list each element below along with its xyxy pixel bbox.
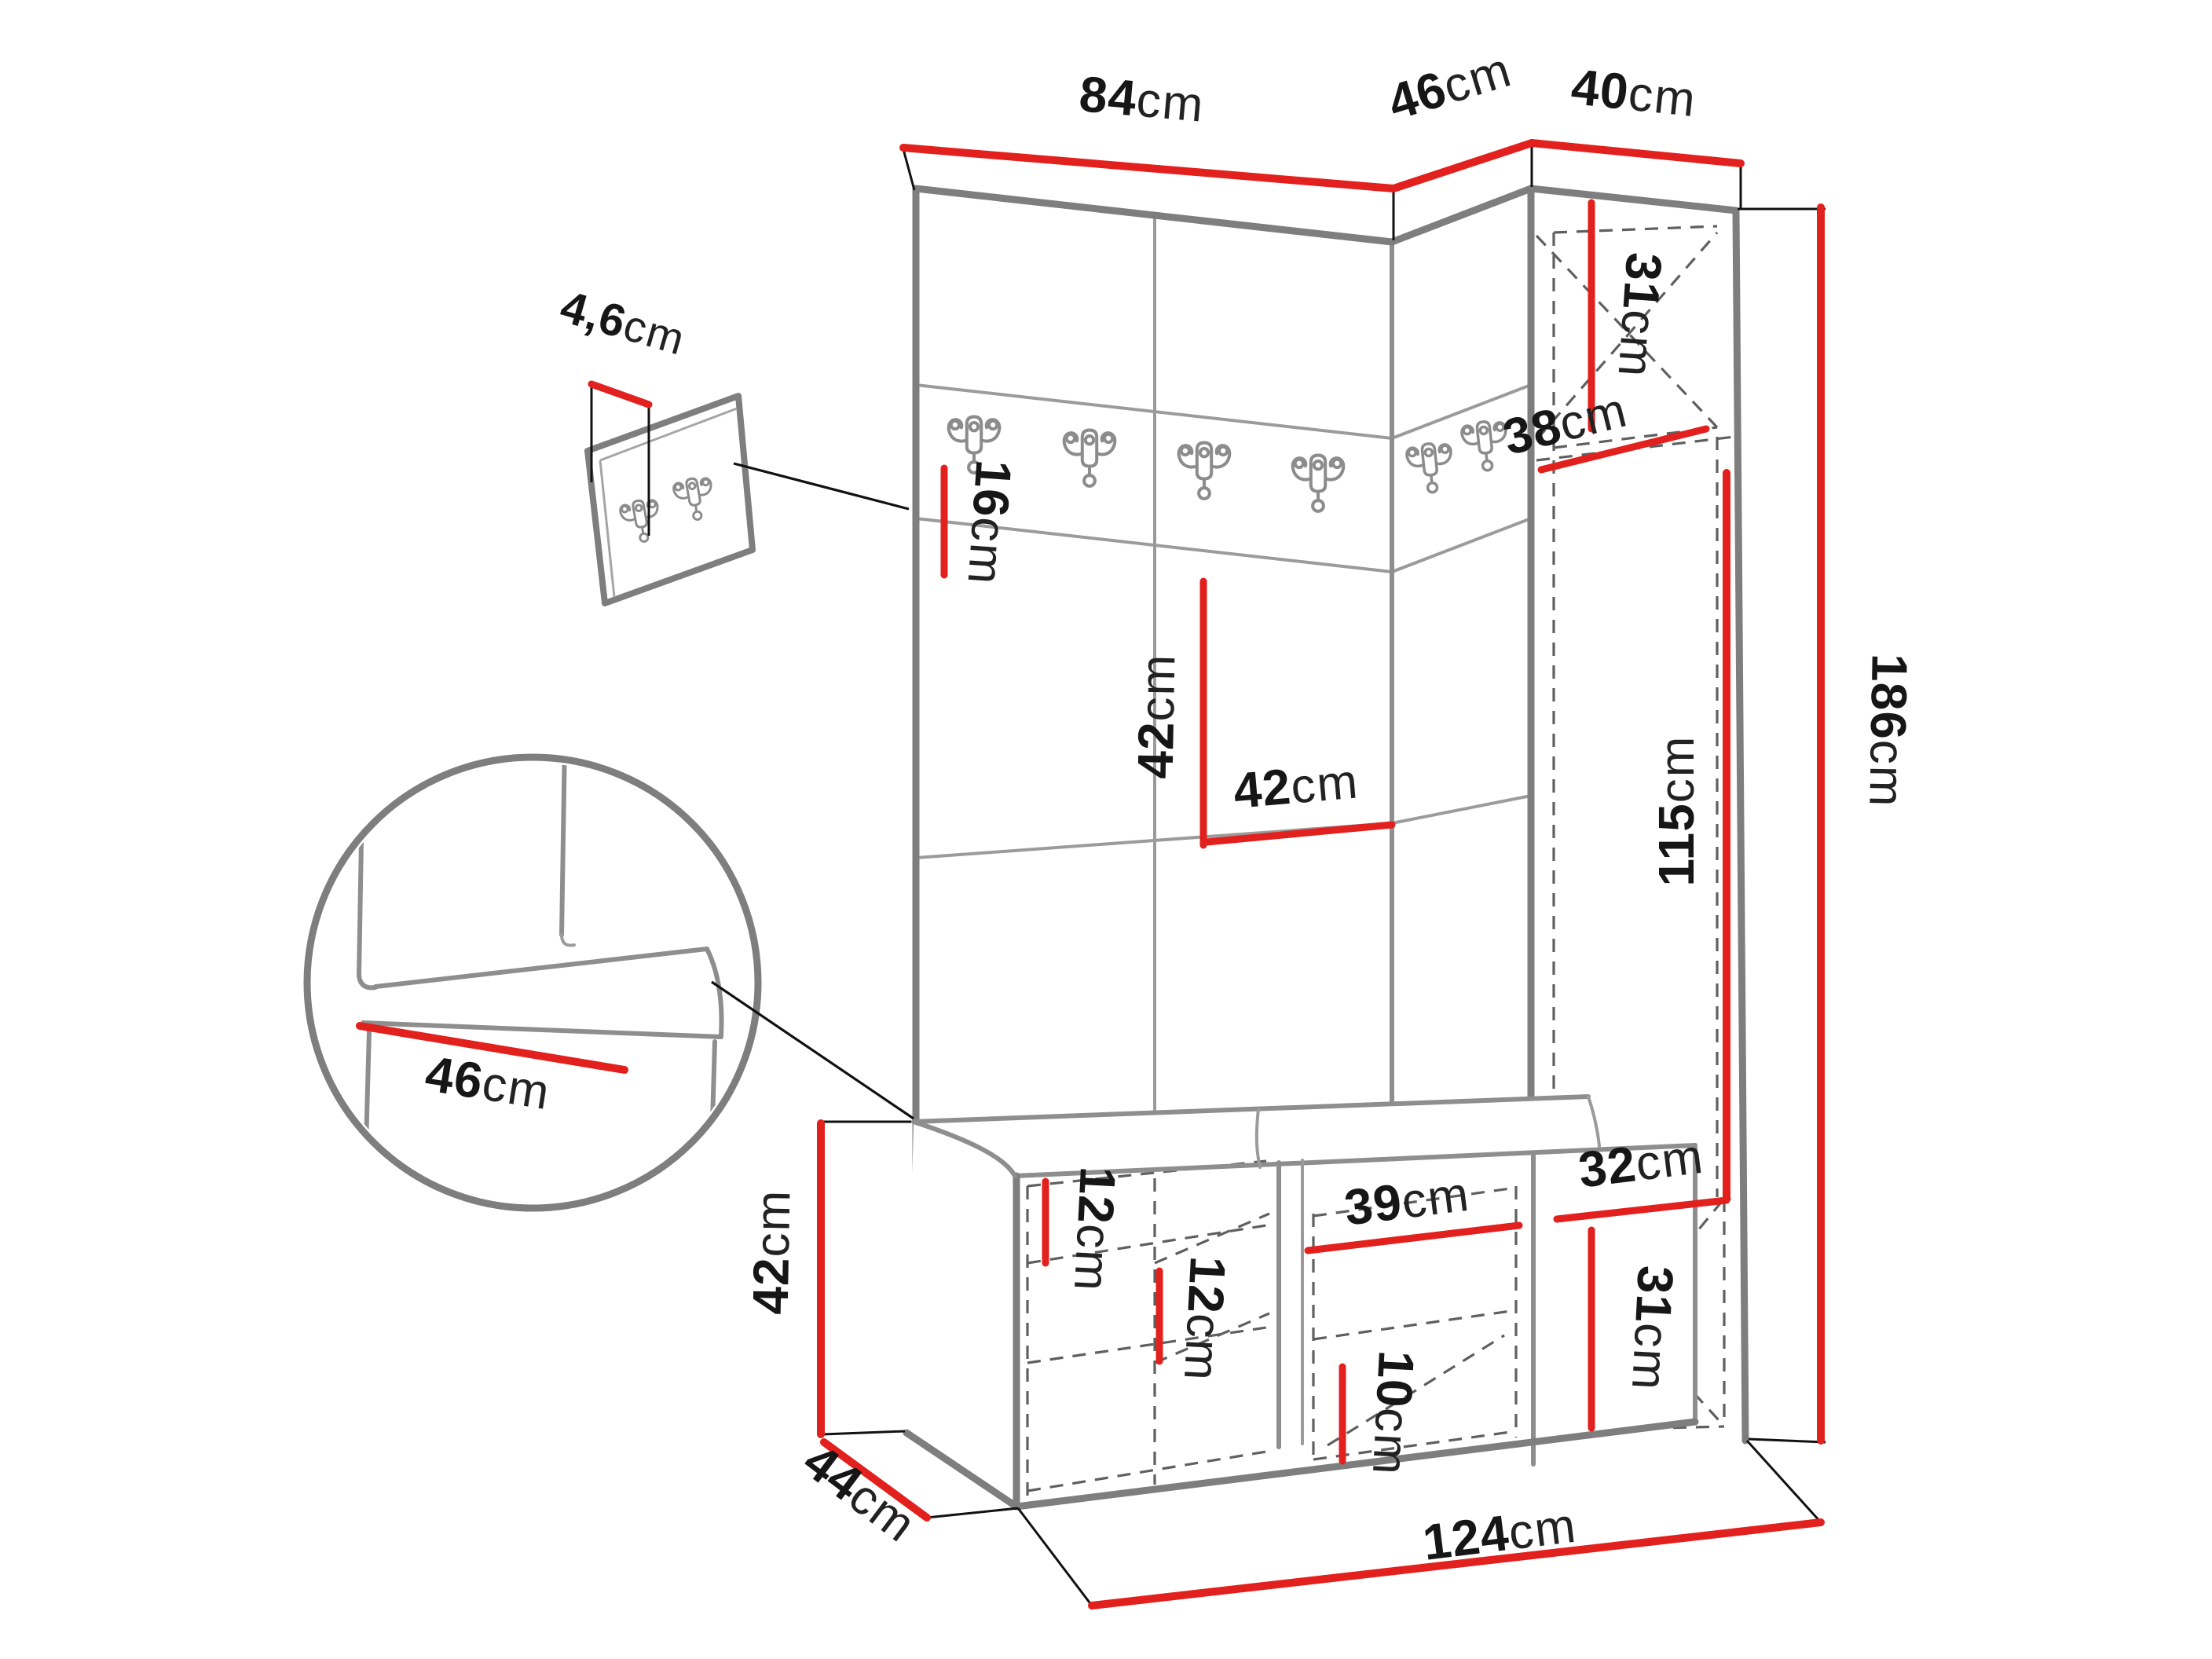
dim-label-84cm: 84cm <box>1077 65 1207 133</box>
dim-label-124cm: 124cm <box>1419 1496 1580 1570</box>
wall-hook-panel <box>588 396 753 603</box>
dim-label-4-6cm: 4,6cm <box>555 281 691 365</box>
dim-label-10cm: 10cm <box>1362 1349 1425 1477</box>
dim-label-12cm-upper: 12cm <box>1064 1165 1126 1293</box>
dim-label-31cm-top: 31cm <box>1607 251 1672 379</box>
dim-line-84 <box>903 148 1393 189</box>
dim-label-42cm-vertical: 42cm <box>1127 653 1186 779</box>
dim-line-4-6 <box>591 384 649 405</box>
dim-label-40cm: 40cm <box>1569 58 1699 127</box>
furniture-dimension-diagram: 84cm 46cm 40cm 4,6cm 16cm 31cm 38cm 42cm… <box>0 0 2212 1659</box>
dim-label-46cm-top: 46cm <box>1382 40 1518 131</box>
dim-label-12cm-lower: 12cm <box>1174 1254 1236 1382</box>
leader-panel-to-rail <box>734 463 909 509</box>
dim-label-16cm: 16cm <box>957 458 1022 587</box>
corner-panel-face <box>1392 189 1531 1135</box>
dim-label-186cm: 186cm <box>1859 654 1917 809</box>
dim-label-44cm: 44cm <box>793 1433 928 1554</box>
dim-label-42cm-horizontal: 42cm <box>1231 752 1361 819</box>
dim-label-42cm-bench: 42cm <box>742 1188 801 1315</box>
dim-line-40 <box>1532 143 1741 163</box>
dim-label-31cm-bottom: 31cm <box>1621 1264 1684 1392</box>
seat-detail-circle <box>307 740 758 1208</box>
dim-label-115cm: 115cm <box>1648 735 1705 887</box>
dim-line-46-top <box>1393 143 1532 189</box>
